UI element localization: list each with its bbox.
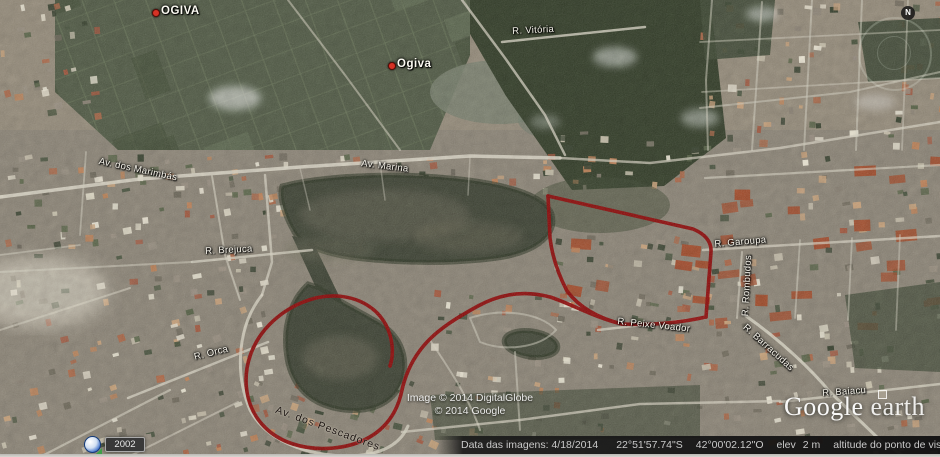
compass-ring[interactable] <box>858 17 932 91</box>
longitude: 42°00'02.12"O <box>696 439 764 451</box>
elev-value: 2 m <box>803 439 821 451</box>
google-earth-window: Av. dos MarimbásAv. MarinaR. VitóriaR. B… <box>0 0 940 457</box>
imagery-year[interactable]: 2002 <box>105 437 145 452</box>
status-bar: Data das imagens: 4/18/2014 22°51'57.74"… <box>437 436 940 454</box>
elev-label: elev <box>777 439 796 451</box>
satellite-map-viewport[interactable] <box>0 0 940 457</box>
historical-imagery-chip[interactable]: 2002 <box>84 436 145 453</box>
imagery-date: Data das imagens: 4/18/2014 <box>461 439 598 451</box>
compass-north-icon[interactable]: N <box>901 6 915 20</box>
mottle-overlay <box>0 0 940 457</box>
eye-alt-label: altitude do ponto de visão <box>833 439 940 451</box>
latitude: 22°51'57.74"S <box>616 439 683 451</box>
clock-icon[interactable] <box>84 436 101 453</box>
compass-ring-inner <box>877 36 911 70</box>
map-marker-icon <box>878 390 887 399</box>
